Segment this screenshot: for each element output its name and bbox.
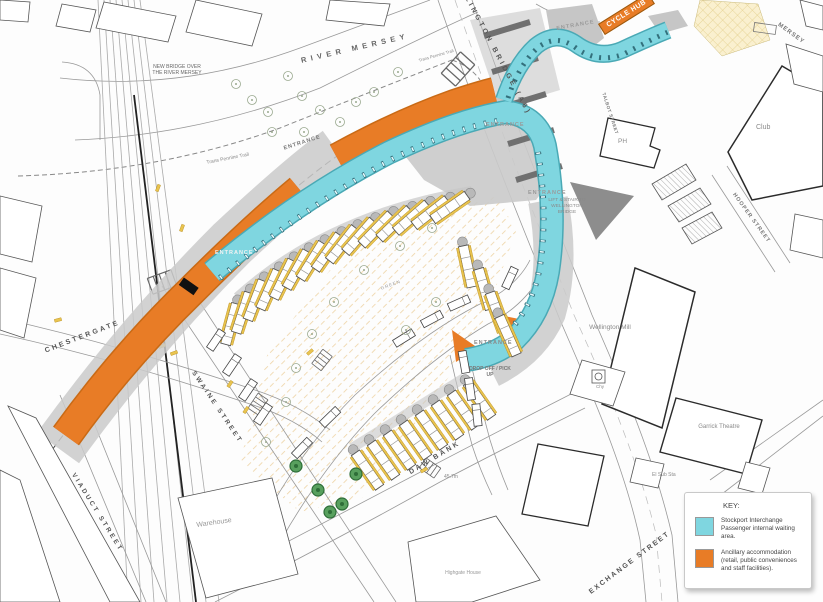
spot-height-label: 45.7m [444,474,458,480]
lift-stair-label: LIFT & STAIR TO WELLINGTON BRIDGE [544,198,590,215]
drop-off-pick-up-label: DROP OFF / PICK UP [468,366,512,378]
passenger-area-label: Stockport Interchange Passenger internal… [721,517,803,542]
chy-label: Chy [596,384,604,389]
garrick-theatre-label: Garrick Theatre [694,424,744,431]
wellington-mill-label: Wellington Mill [584,324,636,332]
entrance-label-plaza: ENTRANCE [486,122,525,129]
club-label: Club [756,124,770,132]
passenger-area-swatch [695,517,714,536]
ancillary-label: Ancillary accommodation (retail, public … [721,549,803,574]
hatched-parcel [694,0,770,56]
ph-label: PH [618,138,627,146]
new-bridge-label: NEW BRIDGE OVER THE RIVER MERSEY [152,64,202,76]
highgate-house-label: Highgate House [440,570,486,576]
site-plan-map: RIVER MERSEY NEW BRIDGE OVER THE RIVER M… [0,0,823,602]
key-item-ancillary: Ancillary accommodation (retail, public … [695,549,803,574]
entrance-label-southeast: ENTRANCE [474,340,513,347]
key-item-passenger: Stockport Interchange Passenger internal… [695,517,803,542]
ancillary-swatch [695,549,714,568]
el-sub-sta-label: El Sub Sta [652,472,676,478]
map-key: KEY: Stockport Interchange Passenger int… [684,492,812,589]
entrance-label-southwest: ENTRANCE [215,250,254,257]
ph-building [600,118,660,168]
key-title: KEY: [723,501,803,510]
highgate-house-building [408,516,540,602]
entrance-label-stairs: ENTRANCE [528,190,567,197]
warehouse-building [178,478,298,598]
